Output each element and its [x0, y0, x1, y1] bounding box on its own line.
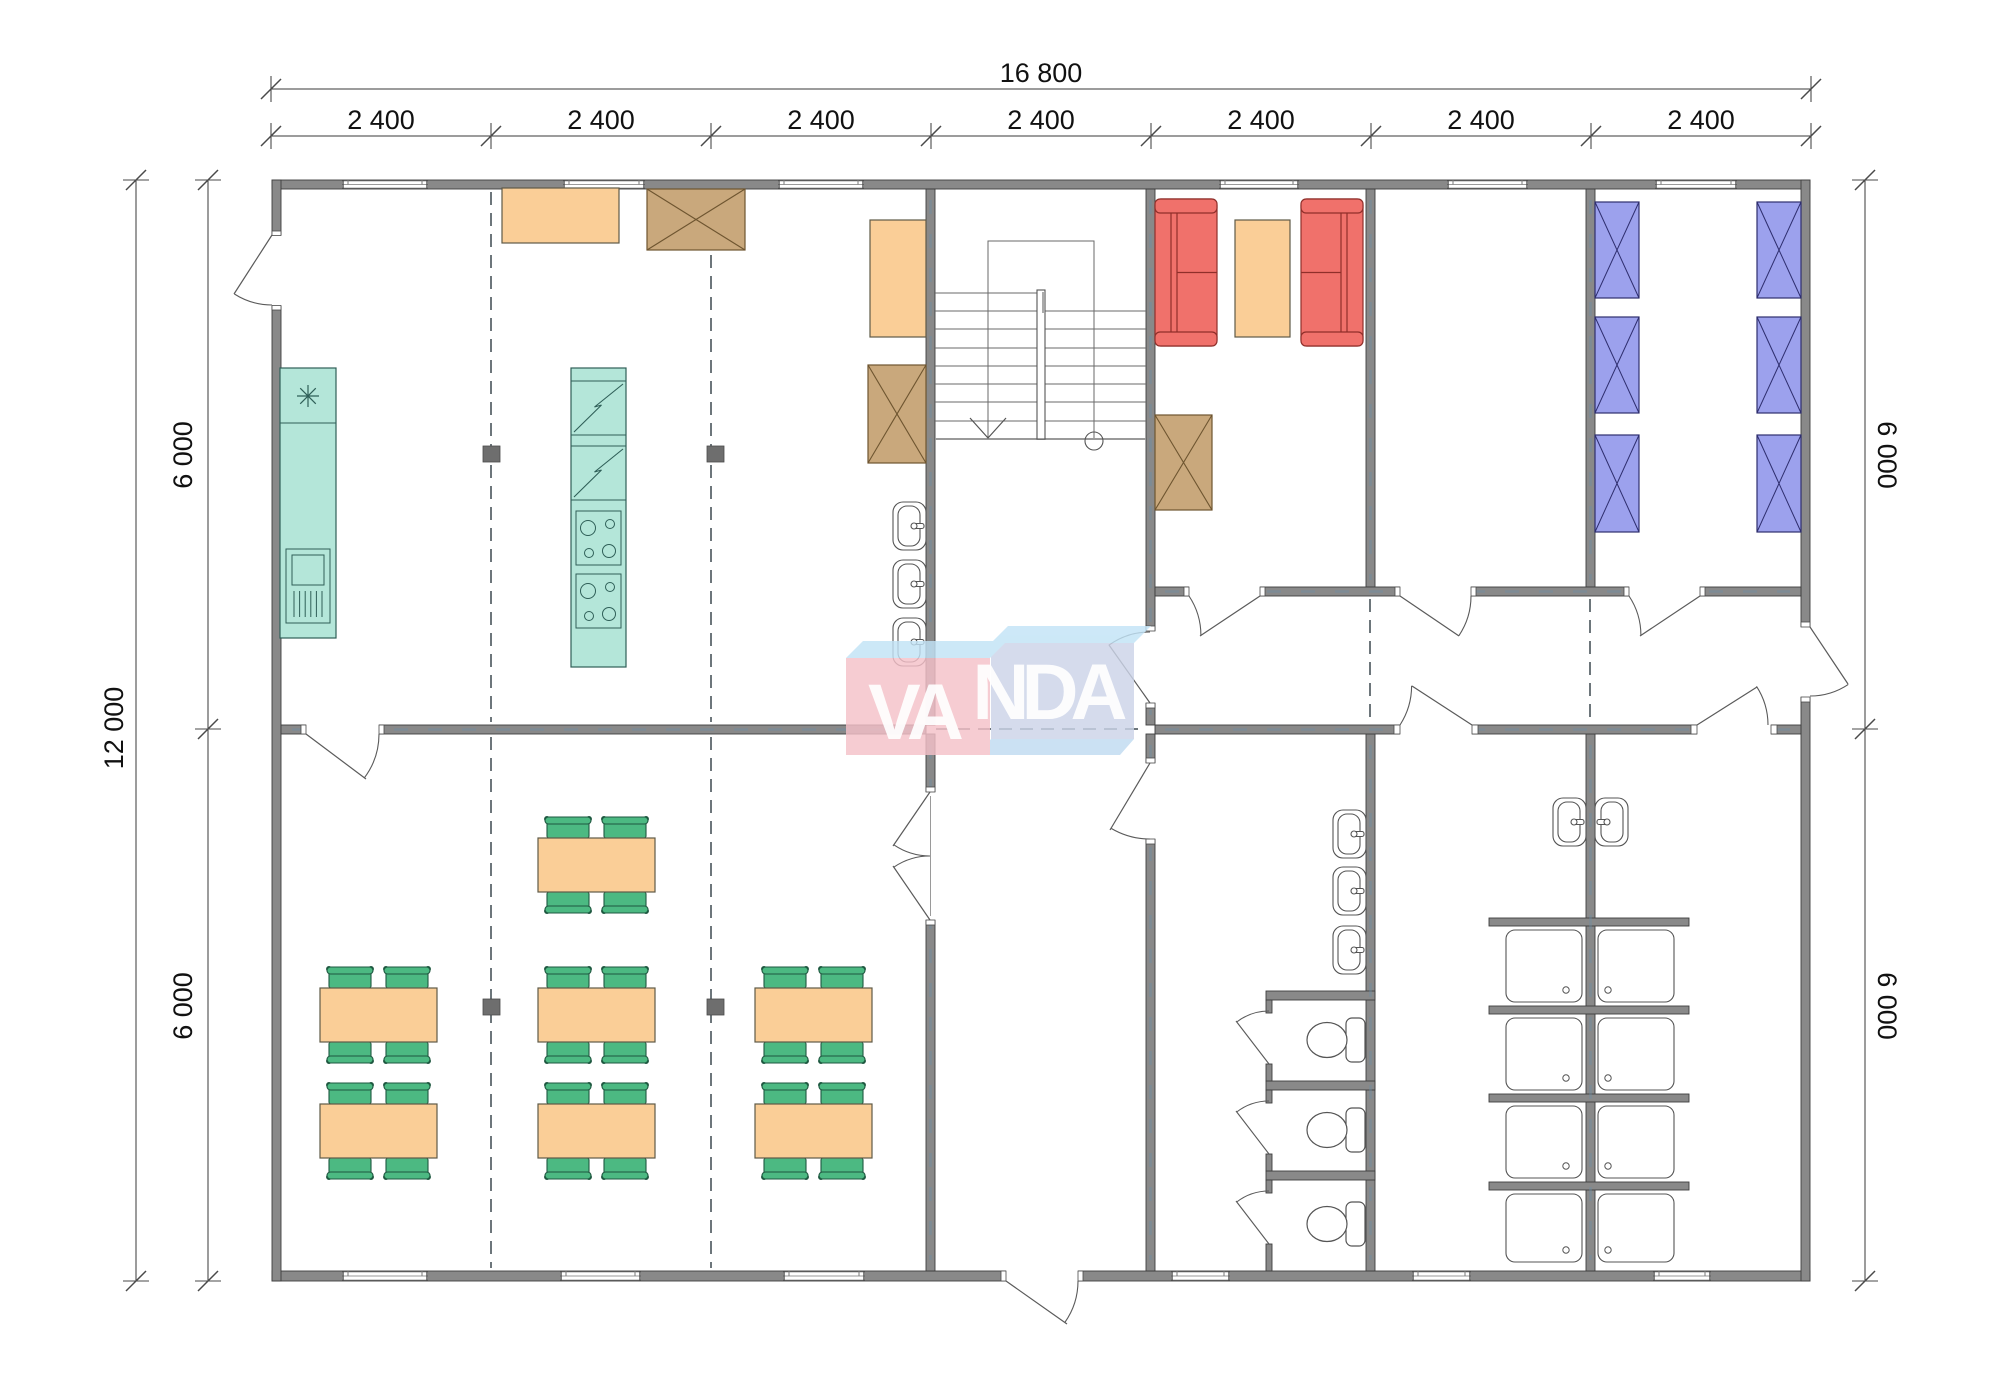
svg-text:6 000: 6 000	[168, 972, 198, 1040]
svg-text:2 400: 2 400	[1007, 105, 1075, 135]
svg-text:NDA: NDA	[972, 647, 1125, 736]
svg-text:6 000: 6 000	[168, 421, 198, 489]
svg-text:2 400: 2 400	[1667, 105, 1735, 135]
svg-text:6 000: 6 000	[1872, 421, 1902, 489]
svg-text:16 800: 16 800	[1000, 58, 1083, 88]
svg-text:2 400: 2 400	[1447, 105, 1515, 135]
svg-text:2 400: 2 400	[567, 105, 635, 135]
svg-text:2 400: 2 400	[1227, 105, 1295, 135]
svg-text:2 400: 2 400	[787, 105, 855, 135]
svg-text:6 000: 6 000	[1872, 972, 1902, 1040]
svg-text:2 400: 2 400	[347, 105, 415, 135]
svg-text:12 000: 12 000	[99, 687, 129, 770]
svg-text:VA: VA	[868, 667, 962, 756]
